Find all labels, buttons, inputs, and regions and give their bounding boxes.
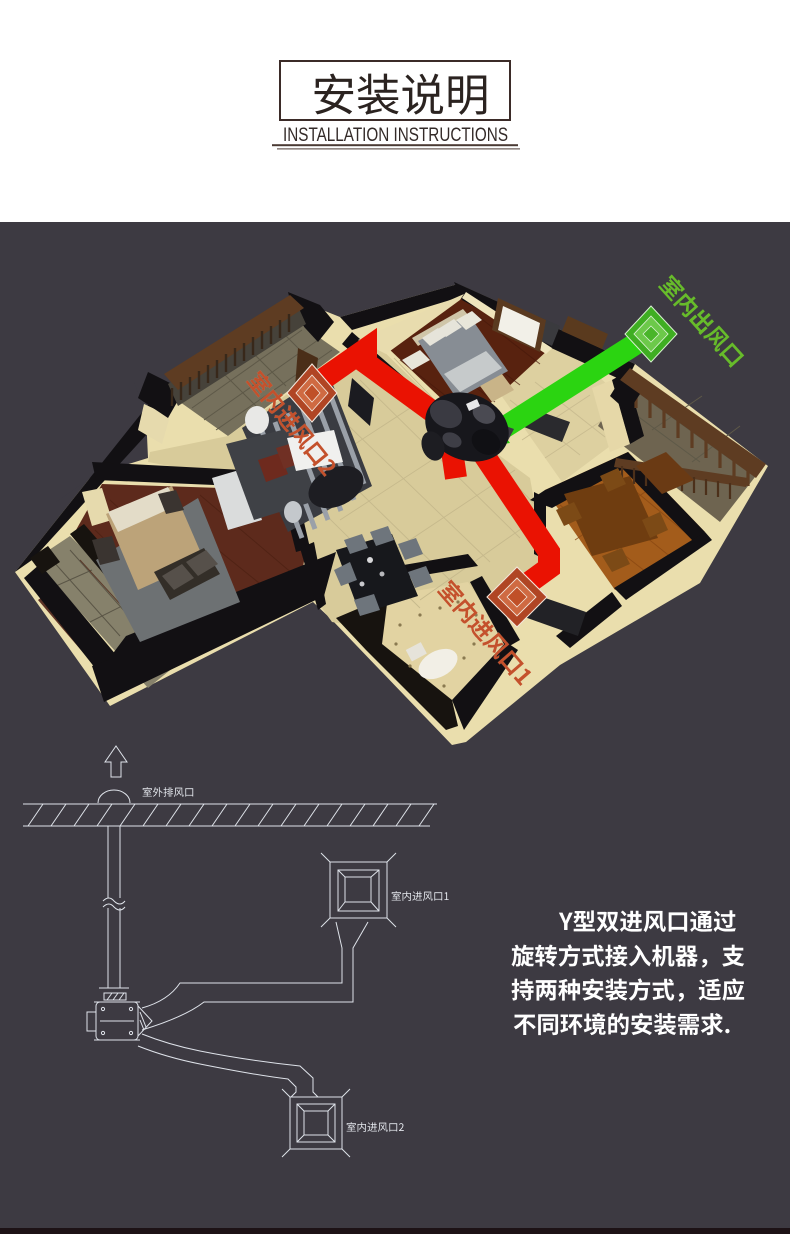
- svg-text:INSTALLATION INSTRUCTIONS: INSTALLATION INSTRUCTIONS: [283, 125, 508, 146]
